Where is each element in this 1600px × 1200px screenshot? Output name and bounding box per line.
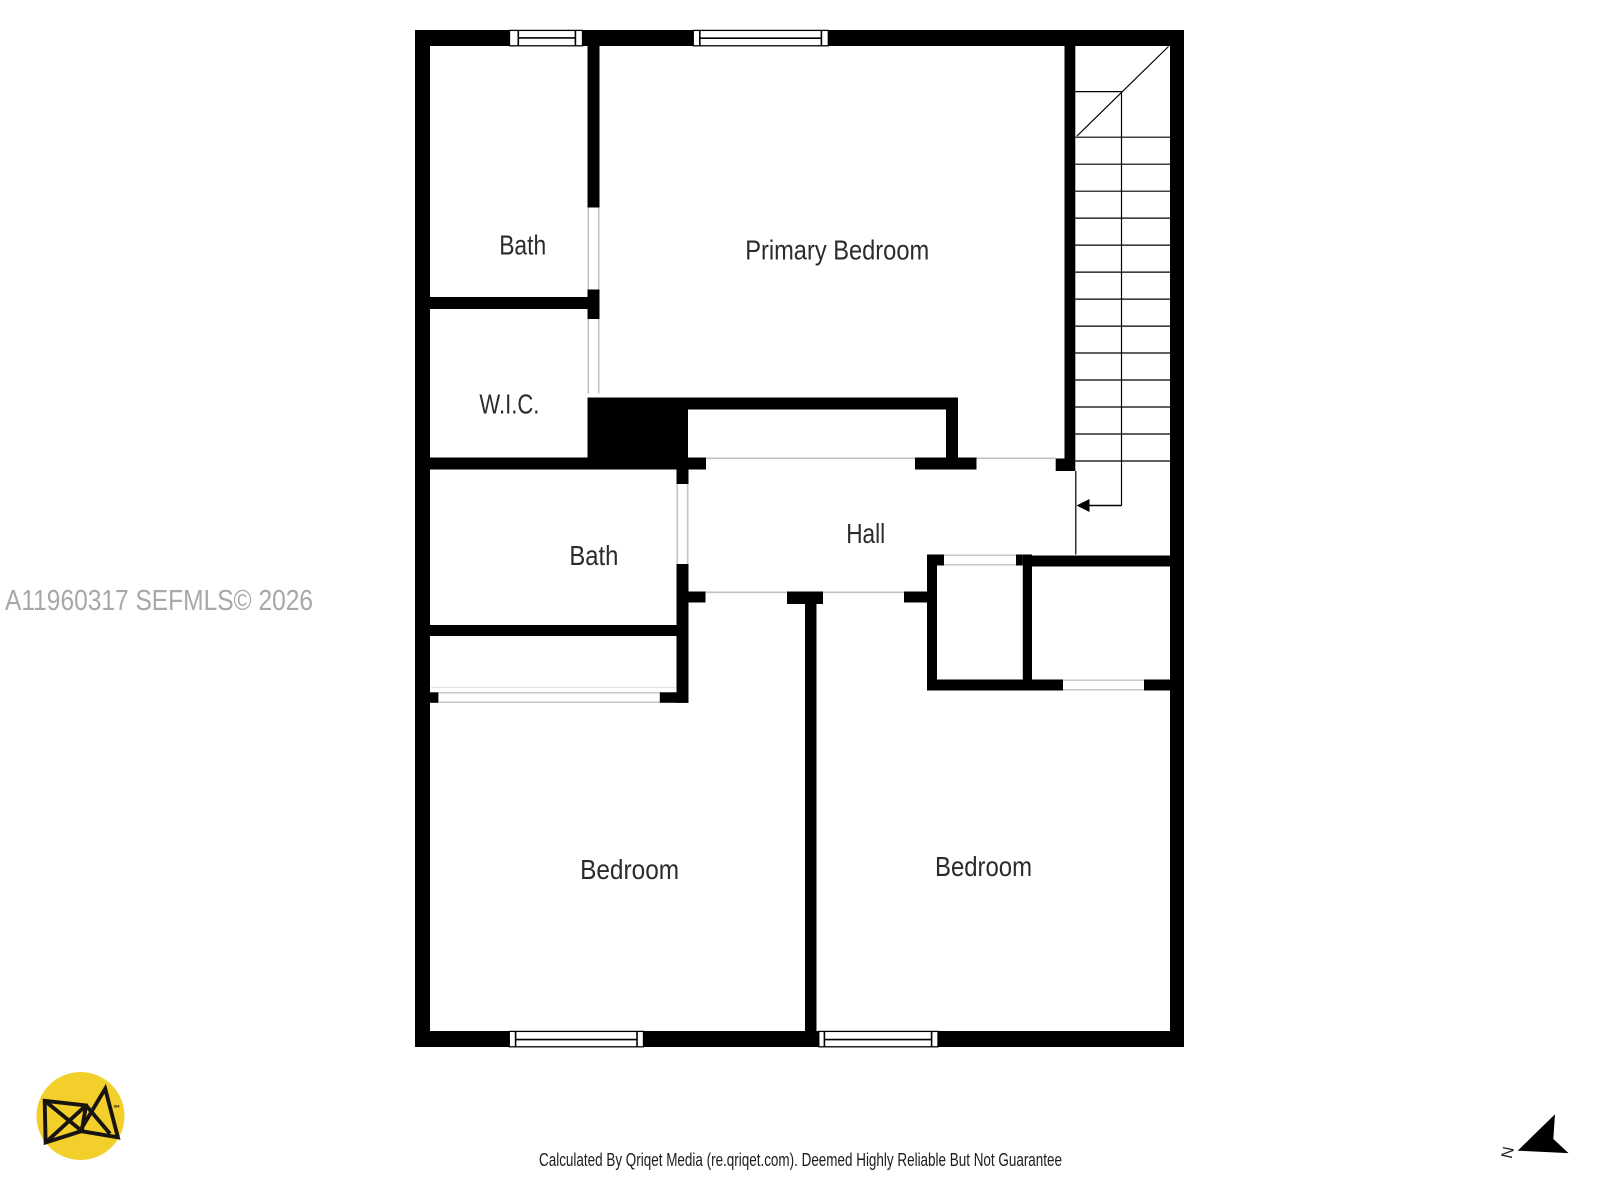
svg-text:Primary Bedroom: Primary Bedroom	[745, 235, 929, 266]
svg-text:Bath: Bath	[569, 540, 618, 571]
svg-text:Calculated By Qriqet Media (re: Calculated By Qriqet Media (re.qriqet.co…	[539, 1150, 1062, 1170]
svg-text:A11960317 SEFMLS© 2026: A11960317 SEFMLS© 2026	[5, 585, 313, 617]
svg-text:Bath: Bath	[499, 230, 546, 261]
svg-text:W.I.C.: W.I.C.	[479, 389, 539, 420]
svg-text:SM: SM	[114, 1104, 121, 1109]
svg-text:Hall: Hall	[846, 518, 885, 549]
svg-text:Bedroom: Bedroom	[935, 851, 1032, 882]
svg-text:Bedroom: Bedroom	[580, 854, 679, 885]
